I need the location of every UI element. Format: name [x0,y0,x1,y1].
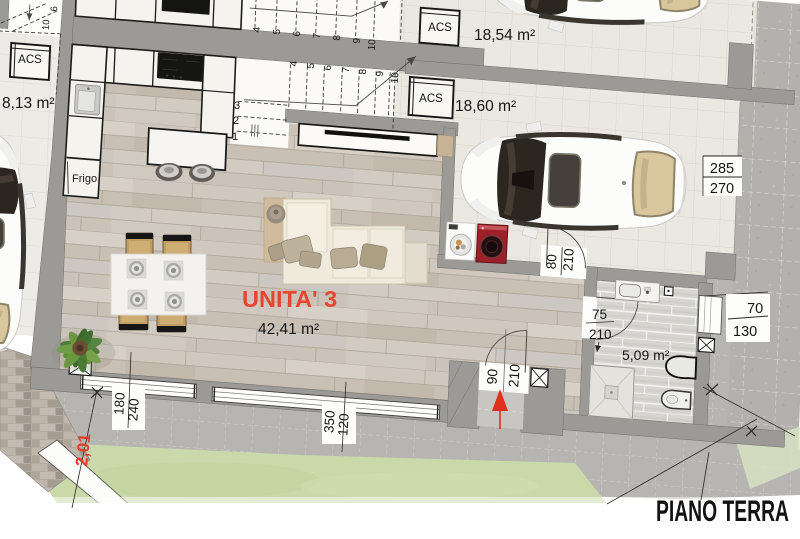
svg-text:80: 80 [544,254,560,270]
svg-text:6: 6 [49,6,60,12]
svg-text:10: 10 [41,19,53,30]
svg-text:240: 240 [125,398,142,422]
svg-text:210: 210 [589,327,612,342]
svg-text:8,13 m²: 8,13 m² [2,95,55,112]
svg-text:18,60 m²: 18,60 m² [455,98,516,115]
svg-text:ACS: ACS [428,22,452,34]
svg-text:2,01: 2,01 [72,433,94,468]
svg-text:90: 90 [483,368,500,385]
svg-text:3: 3 [234,100,240,112]
svg-text:ACS: ACS [419,93,443,105]
svg-text:Frigo: Frigo [72,173,97,185]
svg-text:PIANO TERRA: PIANO TERRA [656,495,789,528]
svg-text:10: 10 [367,38,379,50]
svg-text:270: 270 [710,181,734,197]
svg-text:10: 10 [390,71,402,83]
svg-text:210: 210 [560,248,577,272]
svg-text:130: 130 [733,324,757,340]
svg-text:UNITA' 3: UNITA' 3 [242,286,337,312]
svg-text:210: 210 [505,363,523,388]
svg-text:1: 1 [232,131,238,143]
svg-text:285: 285 [710,161,734,177]
svg-text:120: 120 [335,413,352,437]
svg-text:42,41 m²: 42,41 m² [258,321,319,338]
svg-text:75: 75 [592,307,607,322]
svg-text:ACS: ACS [18,54,42,66]
svg-text:18,54 m²: 18,54 m² [474,27,535,44]
svg-text:2: 2 [233,115,239,127]
svg-text:5,09 m²: 5,09 m² [622,347,670,363]
svg-text:70: 70 [747,301,763,317]
